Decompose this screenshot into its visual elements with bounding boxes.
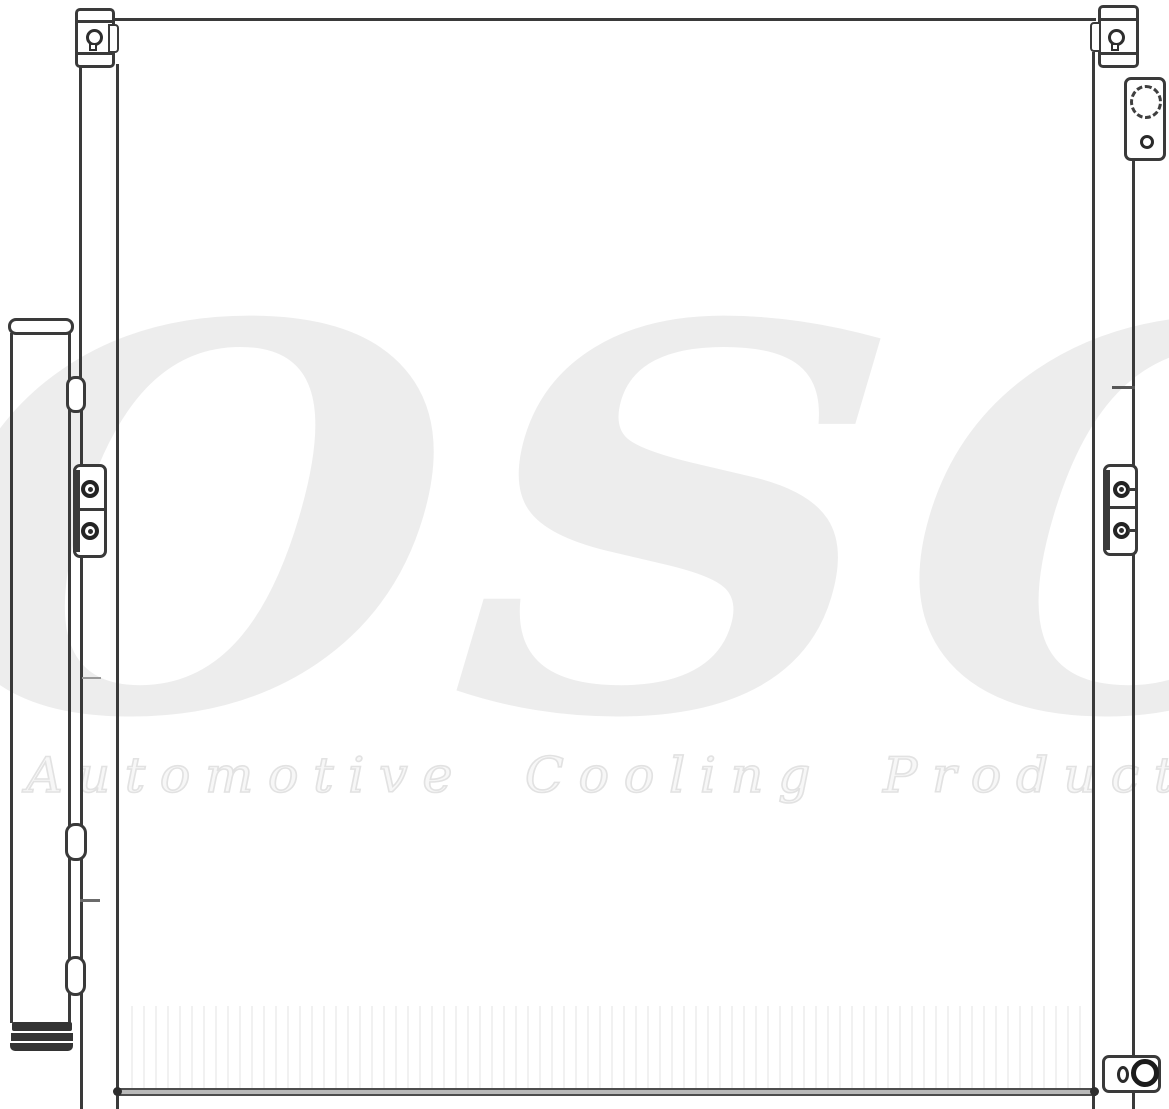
- left-tube-tick-lower: [80, 899, 100, 902]
- core-left-edge: [116, 64, 119, 1109]
- top-left-bracket-lower-seam: [78, 52, 112, 55]
- mid-right-hole-2-tick: [1128, 529, 1138, 532]
- drier-bottom-cap-band-1: [12, 1022, 72, 1031]
- watermark-tagline: Automotive Cooling Products: [26, 742, 1169, 811]
- top-right-bracket-lower-seam: [1101, 52, 1136, 55]
- receiver-drier-right-edge: [68, 333, 71, 1023]
- condenser-product-drawing: OSC Automotive Cooling Products: [0, 0, 1169, 1109]
- mid-right-hole-1-pin: [1119, 487, 1124, 492]
- core-top-edge: [113, 18, 1096, 21]
- outlet-fitting-small-port: [1117, 1066, 1129, 1083]
- tube-joint-capsule-1: [66, 376, 86, 413]
- right-tank-left-edge: [1092, 52, 1095, 1109]
- mid-right-hole-1-tick: [1128, 488, 1138, 491]
- watermark-logo: OSC: [0, 258, 1169, 788]
- mid-left-bracket-divider: [76, 508, 105, 511]
- top-left-bracket-keyway: [89, 43, 97, 51]
- fitting-port-small: [1140, 135, 1154, 149]
- top-right-bracket-tab: [1090, 22, 1101, 52]
- liquid-line-tube-upper: [79, 64, 82, 379]
- bottom-right-junction: [1090, 1087, 1099, 1096]
- top-left-bracket-upper-seam: [78, 20, 112, 23]
- mid-left-hole-2-pin: [88, 529, 93, 534]
- tube-joint-capsule-3: [65, 956, 86, 996]
- drier-bottom-cap-band-2: [11, 1033, 73, 1041]
- receiver-drier-top-cap: [8, 318, 74, 335]
- left-tube-tick-upper: [82, 677, 101, 679]
- right-tank-right-edge: [1132, 160, 1135, 1057]
- bottom-left-junction: [113, 1087, 122, 1096]
- receiver-drier-left-edge: [10, 333, 13, 1023]
- outlet-fitting-large-port: [1131, 1059, 1159, 1087]
- mid-left-hole-1-pin: [88, 487, 93, 492]
- top-left-bracket-tab: [108, 24, 119, 53]
- tube-joint-capsule-2: [65, 823, 87, 861]
- drier-bottom-cap-band-3: [10, 1043, 73, 1051]
- mid-left-bracket-flange: [73, 470, 80, 552]
- right-tank-tick: [1112, 386, 1135, 389]
- mid-right-bracket-divider: [1106, 506, 1136, 509]
- top-right-bracket-keyway: [1111, 43, 1119, 51]
- mid-right-hole-2-pin: [1119, 528, 1124, 533]
- fitting-port-large: [1130, 85, 1162, 119]
- core-bottom-rail: [117, 1088, 1096, 1096]
- condenser-fins-texture: [121, 1006, 1090, 1089]
- mid-right-bracket-flange: [1103, 470, 1110, 550]
- top-right-bracket-upper-seam: [1101, 18, 1136, 21]
